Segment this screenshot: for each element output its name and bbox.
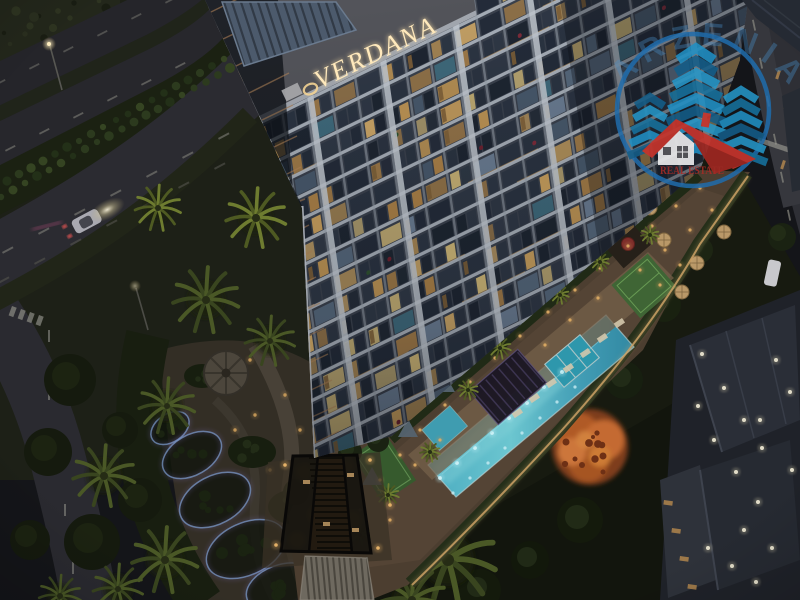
svg-text:REAL ESTATE: REAL ESTATE <box>660 163 724 177</box>
